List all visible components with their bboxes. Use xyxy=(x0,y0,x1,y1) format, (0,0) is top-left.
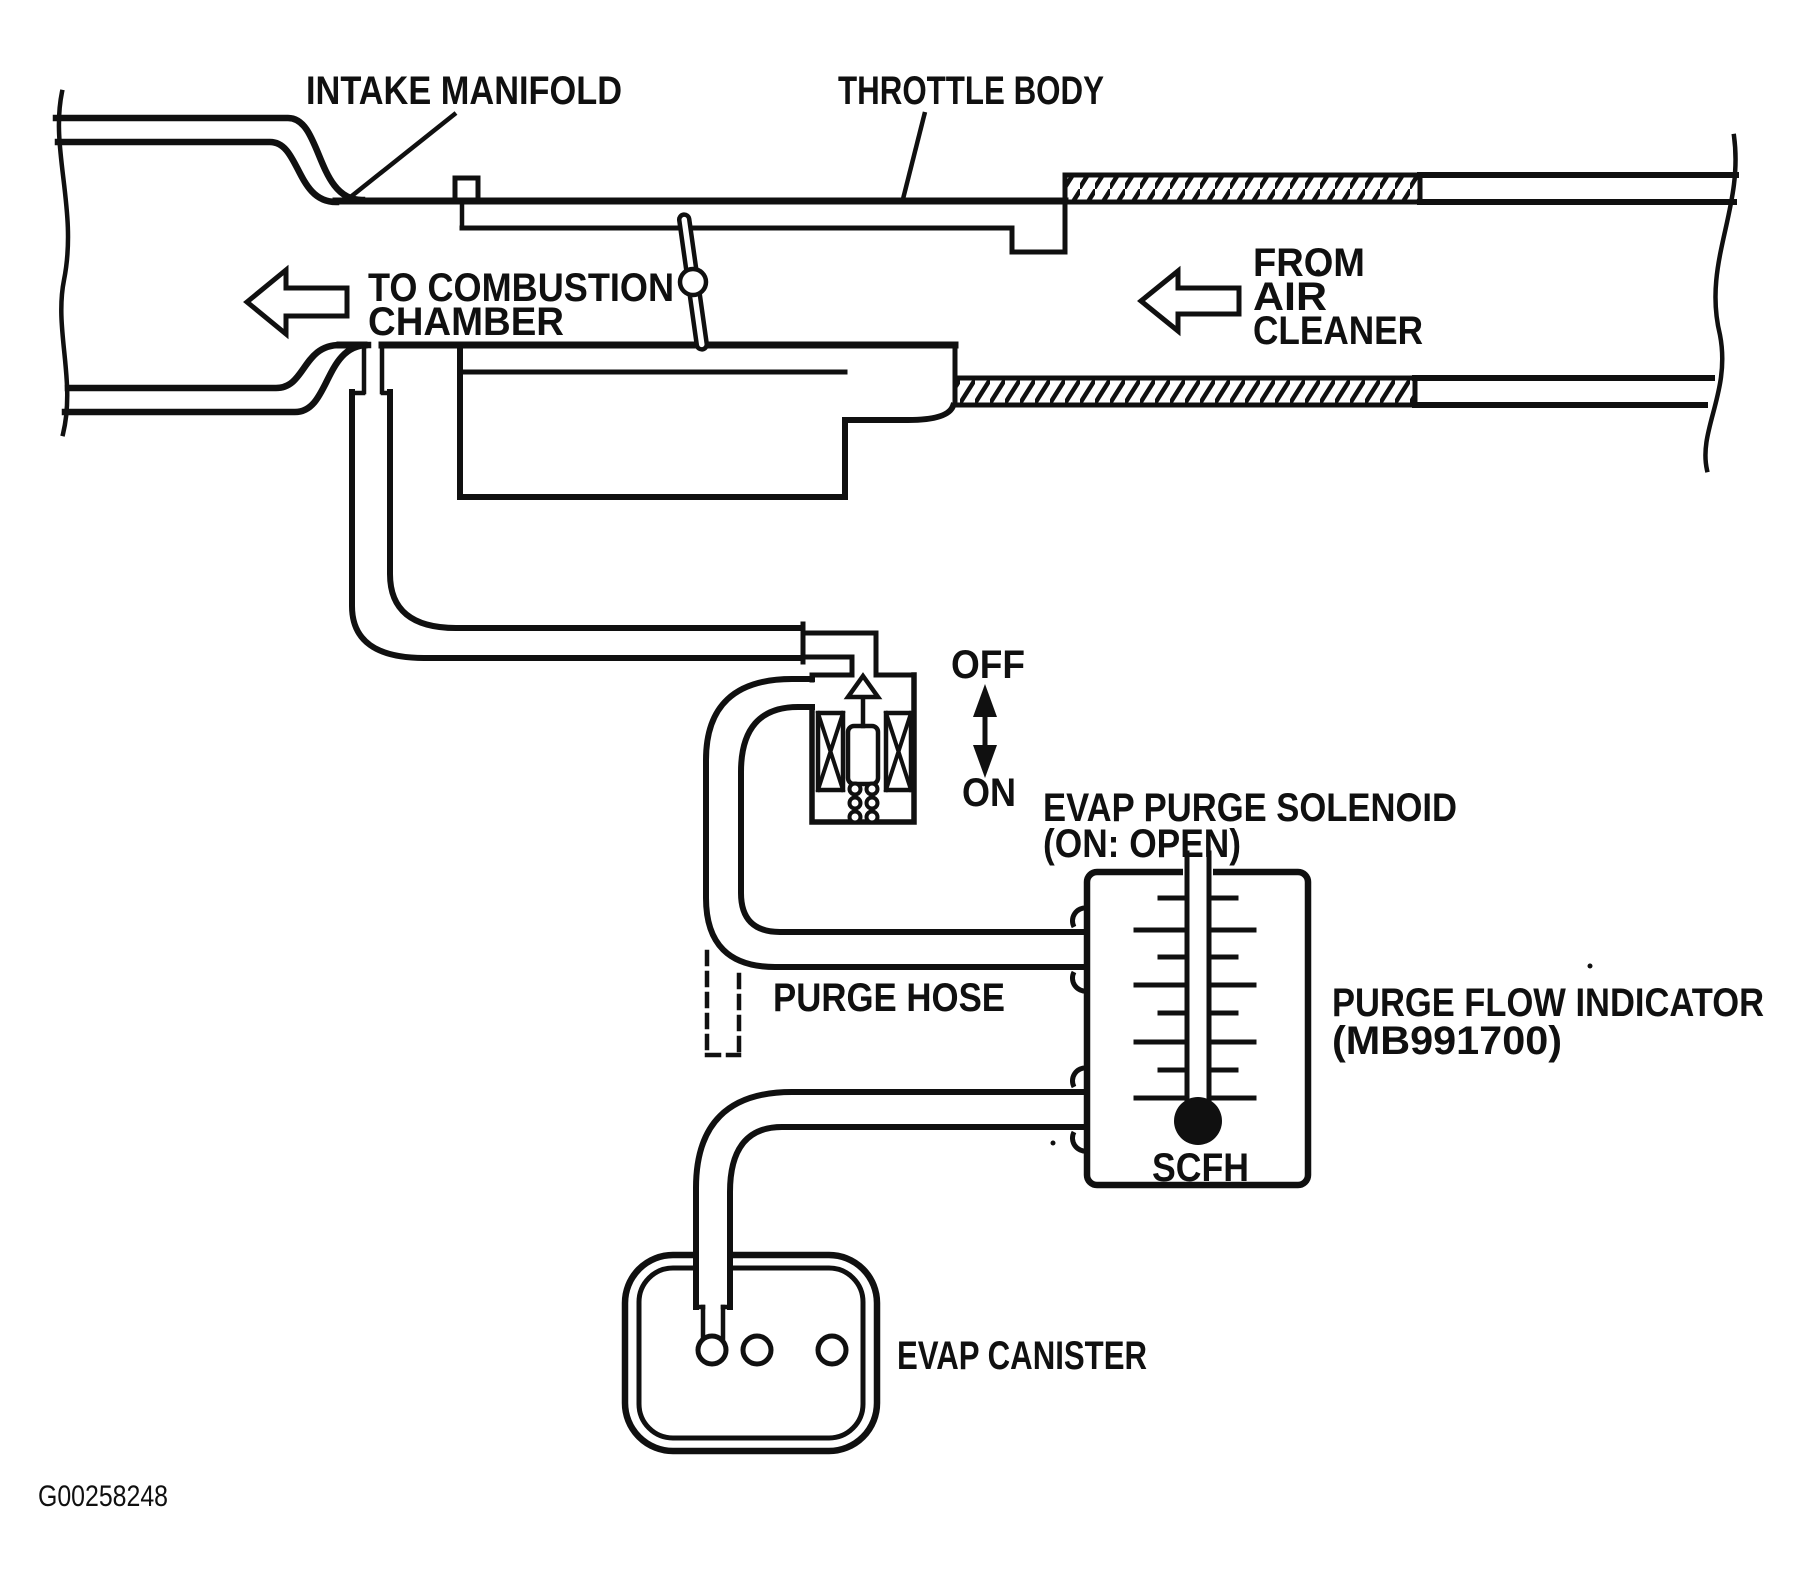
label-throttle-body: THROTTLE BODY xyxy=(838,69,1104,113)
label-solenoid-on: ON xyxy=(962,771,1016,815)
label-solenoid-off: OFF xyxy=(951,643,1025,687)
label-evap-canister: EVAP CANISTER xyxy=(897,1334,1147,1378)
leader-intake-manifold xyxy=(348,113,456,199)
evap-purge-solenoid-valve xyxy=(803,633,914,823)
label-purge-flow-indicator-line2: (MB991700) xyxy=(1332,1019,1562,1063)
solenoid-state-arrow-icon xyxy=(973,684,997,778)
manifold-boss xyxy=(455,178,478,200)
label-to-combustion-line2: CHAMBER xyxy=(368,300,564,344)
evap-purge-flow-diagram: INTAKE MANIFOLD THROTTLE BODY TO COMBUST… xyxy=(0,0,1802,1574)
label-flow-unit-scfh: SCFH xyxy=(1152,1146,1249,1190)
label-intake-manifold: INTAKE MANIFOLD xyxy=(306,69,622,113)
air-duct-hatch-lower xyxy=(955,378,1415,405)
throttle-lower-housing xyxy=(460,345,953,497)
solenoid-vent-holes xyxy=(850,784,878,823)
throttle-shaft-icon xyxy=(680,269,706,295)
leader-throttle-body xyxy=(903,112,925,199)
flow-arrow-from-air-icon xyxy=(1141,271,1239,331)
solenoid-plunger xyxy=(848,726,878,784)
solenoid-coil-right xyxy=(886,713,911,790)
solenoid-plunger-arrow-icon xyxy=(848,676,878,697)
label-purge-hose: PURGE HOSE xyxy=(773,976,1005,1020)
flow-arrow-to-combustion-icon xyxy=(247,270,347,334)
diagram-canvas: INTAKE MANIFOLD THROTTLE BODY TO COMBUST… xyxy=(0,0,1802,1574)
label-evap-purge-solenoid-line2: (ON: OPEN) xyxy=(1043,822,1241,866)
leader-lines xyxy=(348,112,925,199)
throttle-plate xyxy=(679,214,708,350)
purge-hose-dashed xyxy=(707,952,739,1055)
purge-flow-indicator xyxy=(1072,853,1308,1185)
purge-port-and-hose xyxy=(352,345,803,662)
air-duct-hatch-upper xyxy=(1065,175,1420,202)
pipe-gap-mask xyxy=(698,1238,728,1312)
figure-id: G00258248 xyxy=(38,1480,168,1513)
indicator-float-ball xyxy=(1174,1097,1222,1145)
label-from-air-line3: CLEANER xyxy=(1253,309,1423,353)
solenoid-coil-left xyxy=(818,713,843,790)
break-line-right xyxy=(1705,136,1735,470)
canister-ports xyxy=(698,1336,846,1364)
